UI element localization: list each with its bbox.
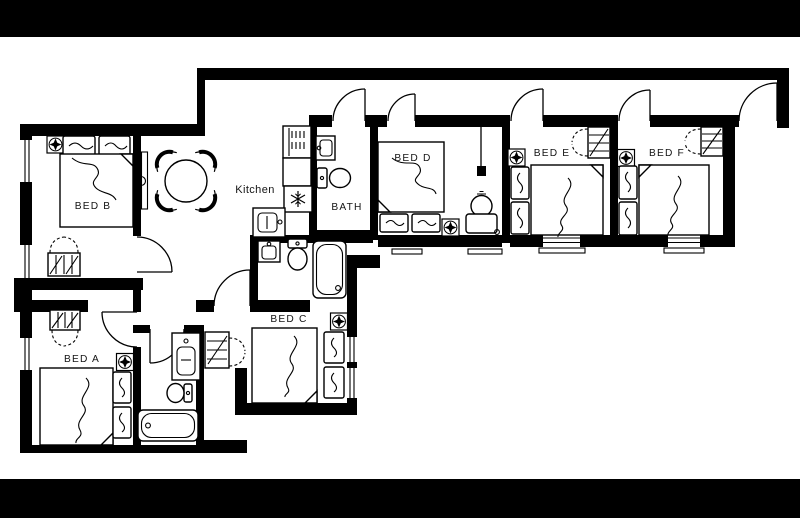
wall [22, 124, 205, 136]
wall [133, 278, 141, 312]
floorplan-page: BED B Kitchen [0, 0, 800, 518]
wall [580, 235, 618, 247]
wall [196, 300, 214, 312]
wall [196, 440, 247, 453]
fridge-freezer-icon [284, 186, 312, 212]
ceiling-fan-icon [618, 150, 635, 167]
wall [347, 255, 357, 337]
room-label-bed-d: BED D [394, 153, 431, 164]
wall [543, 115, 618, 127]
wall [20, 182, 32, 245]
ceiling-fan-icon [117, 354, 134, 371]
bottom-border-bar [0, 479, 800, 518]
wall [235, 403, 357, 415]
bed-icon [60, 154, 133, 227]
wall [378, 235, 502, 247]
wall [250, 243, 258, 306]
top-border-bar [0, 0, 800, 37]
vanity-sink-icon [172, 333, 200, 380]
wall [650, 115, 739, 127]
wall [502, 122, 510, 243]
bathtub-icon [313, 241, 346, 298]
wall [723, 115, 735, 247]
toilet-icon [317, 168, 351, 188]
room-label-bed-a: BED A [64, 354, 100, 365]
wall [133, 325, 150, 333]
wall [347, 362, 357, 368]
wall [20, 312, 32, 338]
kitchen-counter [283, 158, 311, 186]
wall [370, 127, 378, 240]
toilet-icon [167, 384, 192, 403]
kitchen-sink-icon [253, 208, 285, 237]
wall [133, 136, 141, 236]
room-label-bed-e: BED E [534, 148, 571, 159]
wall [20, 124, 32, 140]
wall [22, 278, 143, 290]
ceiling-fan-icon [47, 136, 64, 153]
floorplan-svg: BED B Kitchen [0, 0, 800, 518]
bathtub-icon [138, 410, 198, 441]
ceiling-fan-icon [331, 313, 348, 330]
ensuite-sink-icon [258, 241, 280, 262]
wall [197, 68, 789, 80]
wall [365, 115, 387, 127]
bed-icon [40, 368, 113, 445]
bathroom-sink-icon [316, 136, 335, 160]
toilet-icon [288, 239, 307, 270]
wall [309, 115, 332, 127]
wall [415, 115, 510, 127]
room-label-bed-b: BED B [75, 201, 112, 212]
room-label-kitchen: Kitchen [235, 184, 275, 196]
room-label-bath: BATH [331, 202, 362, 213]
dining-table-icon [165, 160, 207, 202]
wall [618, 235, 668, 247]
wall [777, 80, 789, 128]
wall [510, 235, 543, 247]
ceiling-fan-icon [442, 219, 459, 236]
wall [20, 445, 204, 453]
room-label-bed-f: BED F [649, 148, 685, 159]
bed-icon [639, 165, 709, 235]
wall [700, 235, 723, 247]
bed-icon [252, 328, 317, 403]
hob-icon [283, 126, 311, 158]
room-label-bed-c: BED C [270, 314, 307, 325]
wall [610, 122, 618, 243]
wall [347, 398, 357, 412]
ceiling-fan-icon [508, 149, 525, 166]
wall [20, 370, 32, 453]
wall [250, 300, 310, 312]
bed-icon [531, 165, 603, 237]
